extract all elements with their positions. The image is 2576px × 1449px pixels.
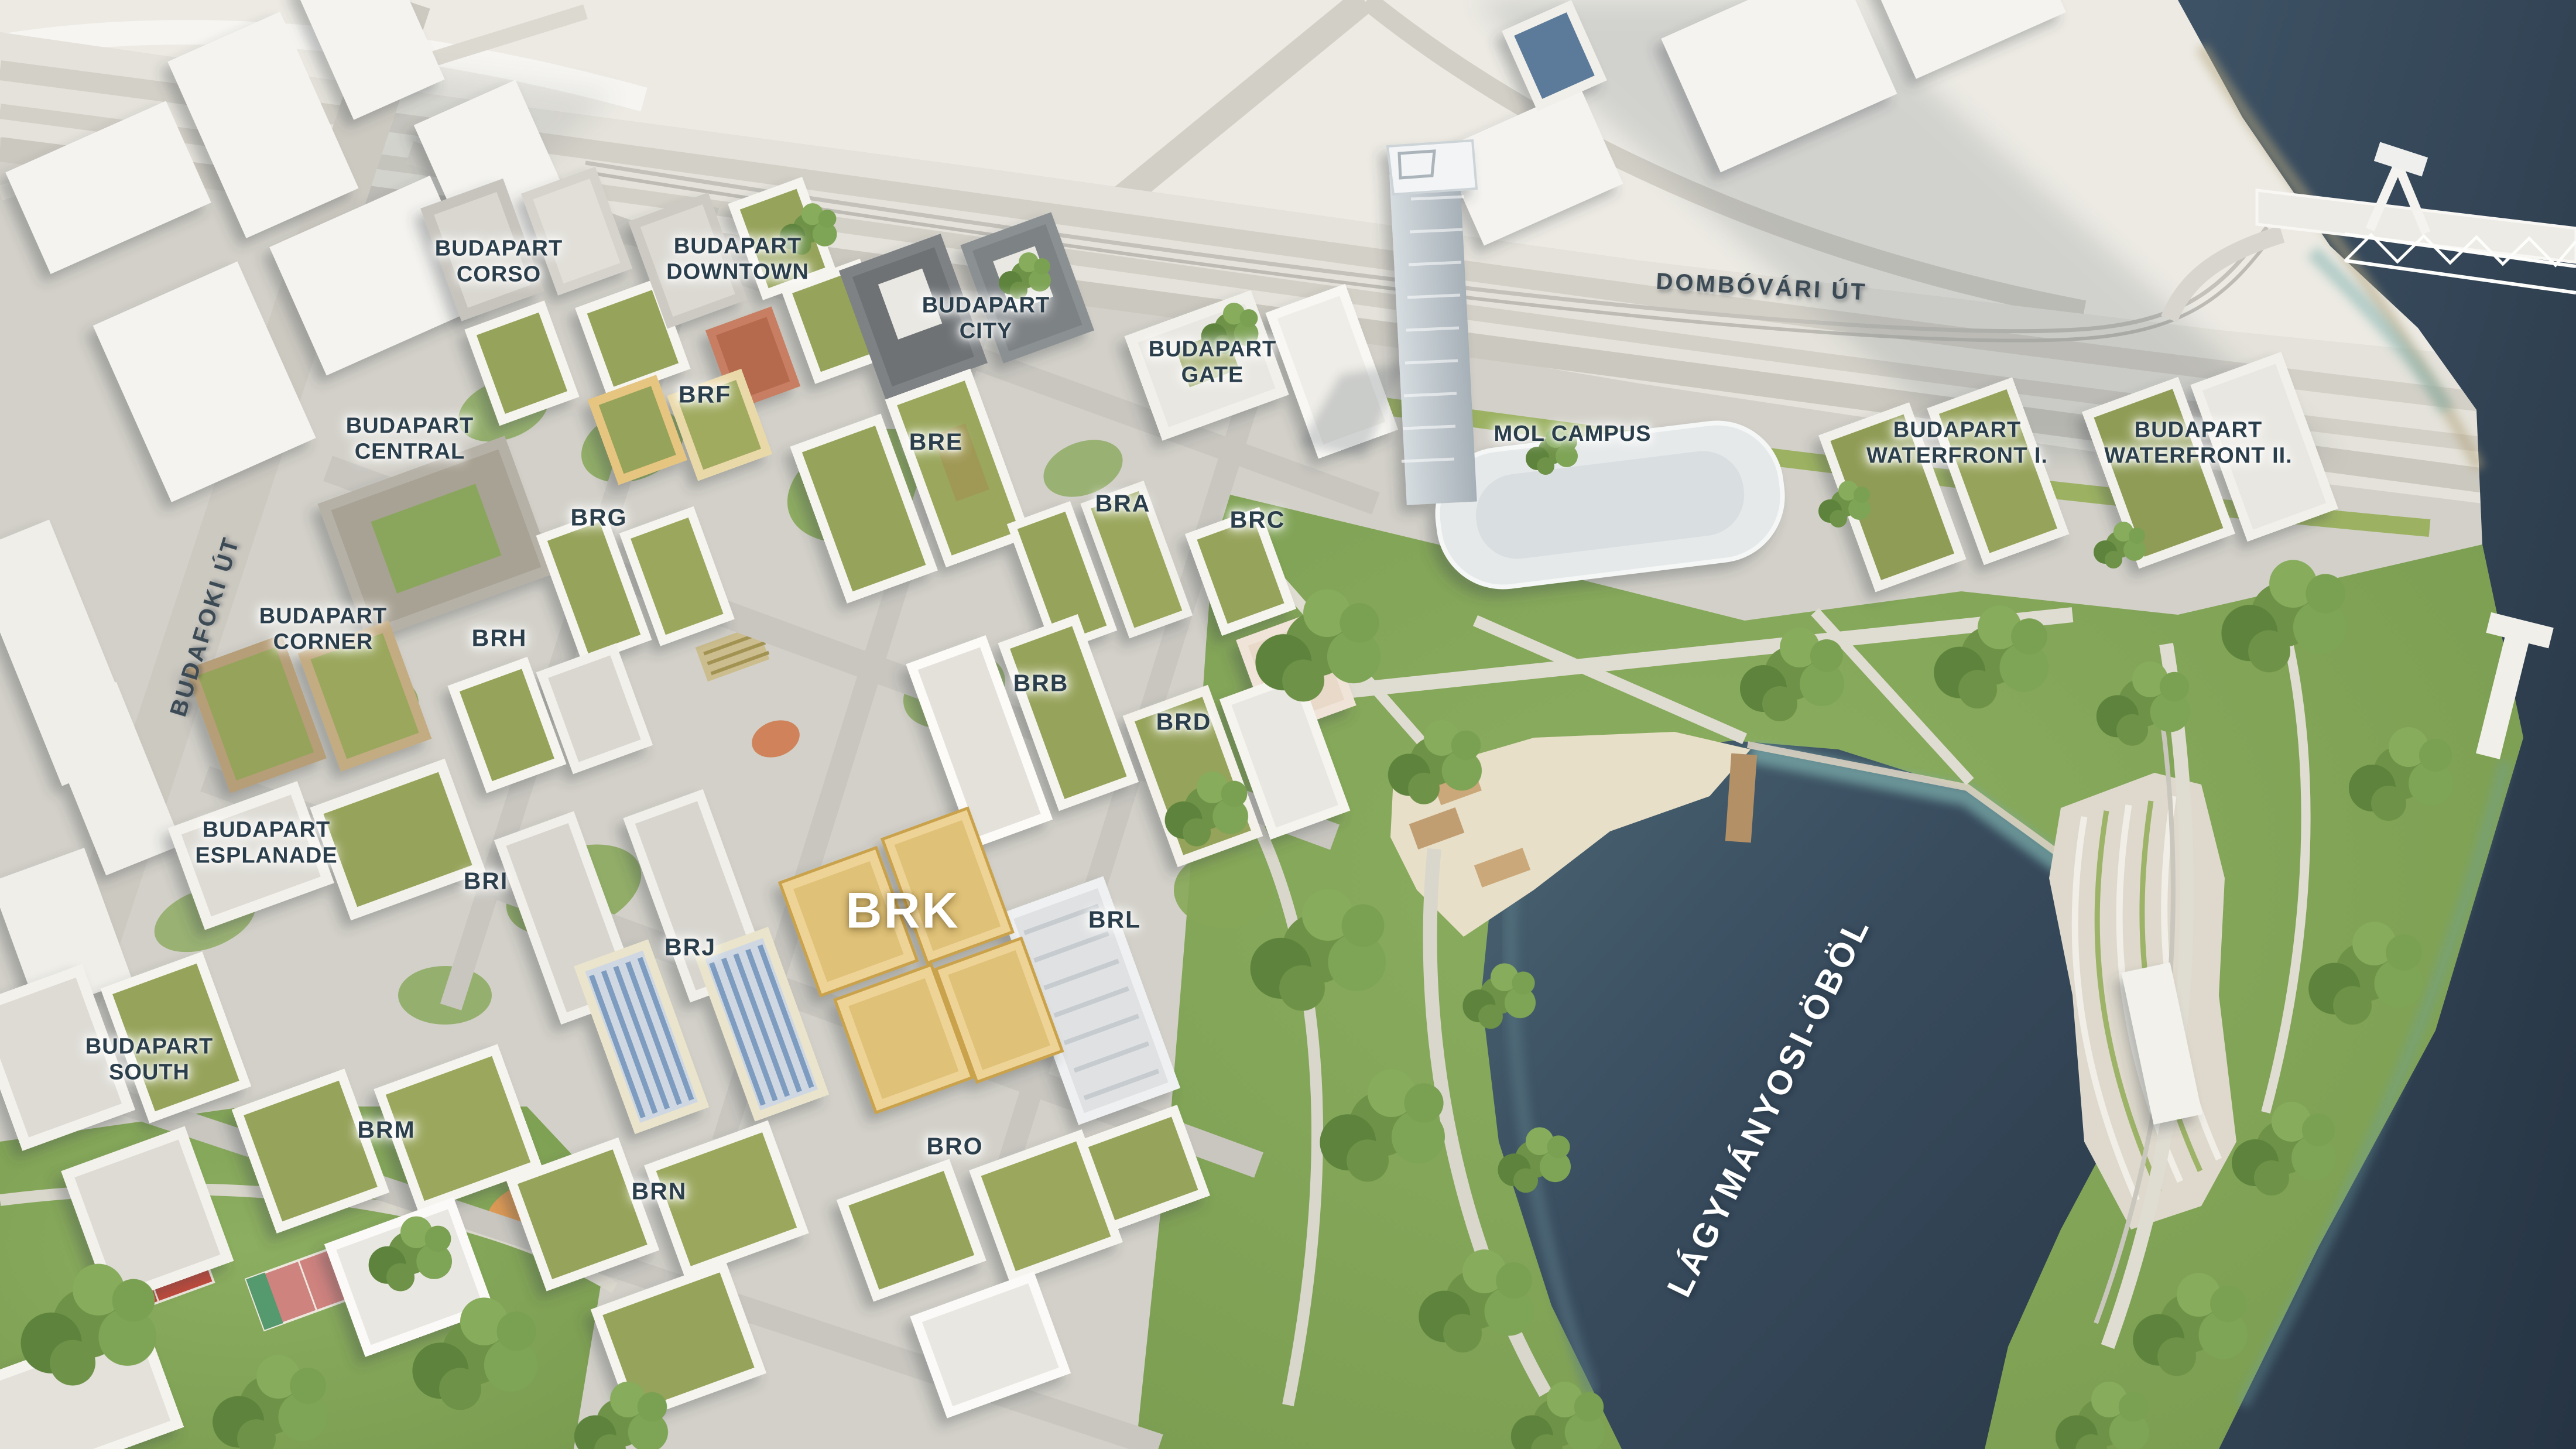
label-brm: BRM	[357, 1116, 415, 1143]
label-mol-campus: MOL CAMPUS	[1494, 422, 1652, 447]
label-brg: BRG	[570, 503, 627, 531]
aerial-masterplan-map: BUDAPART CORSO BUDAPART DOWNTOWN BUDAPAR…	[0, 0, 2576, 1449]
label-budapart-south: BUDAPART SOUTH	[85, 1034, 213, 1085]
label-budapart-esplanade: BUDAPART ESPLANADE	[195, 817, 337, 868]
label-brl: BRL	[1088, 906, 1141, 933]
label-bri: BRI	[464, 867, 509, 895]
label-brk-highlighted: BRK	[845, 882, 960, 940]
label-brf: BRF	[679, 381, 731, 408]
masterplan-render	[0, 0, 2576, 1449]
label-bre: BRE	[909, 428, 964, 455]
label-budapart-central: BUDAPART CENTRAL	[346, 413, 474, 464]
label-brd: BRD	[1156, 708, 1212, 735]
label-brb: BRB	[1013, 669, 1069, 697]
label-bro: BRO	[926, 1132, 983, 1160]
label-budapart-gate: BUDAPART GATE	[1149, 337, 1276, 388]
label-budapart-waterfront-2: BUDAPART WATERFRONT II.	[2104, 417, 2293, 468]
label-budapart-downtown: BUDAPART DOWNTOWN	[666, 234, 809, 285]
label-brc: BRC	[1230, 506, 1286, 533]
label-brn: BRN	[632, 1177, 687, 1205]
label-bra: BRA	[1095, 489, 1151, 517]
label-budapart-waterfront-1: BUDAPART WATERFRONT I.	[1866, 417, 2048, 468]
label-budapart-city: BUDAPART CITY	[922, 293, 1050, 344]
label-brj: BRJ	[664, 933, 716, 961]
label-brh: BRH	[472, 624, 527, 652]
label-budapart-corso: BUDAPART CORSO	[435, 236, 563, 287]
label-budapart-corner: BUDAPART CORNER	[259, 604, 387, 655]
